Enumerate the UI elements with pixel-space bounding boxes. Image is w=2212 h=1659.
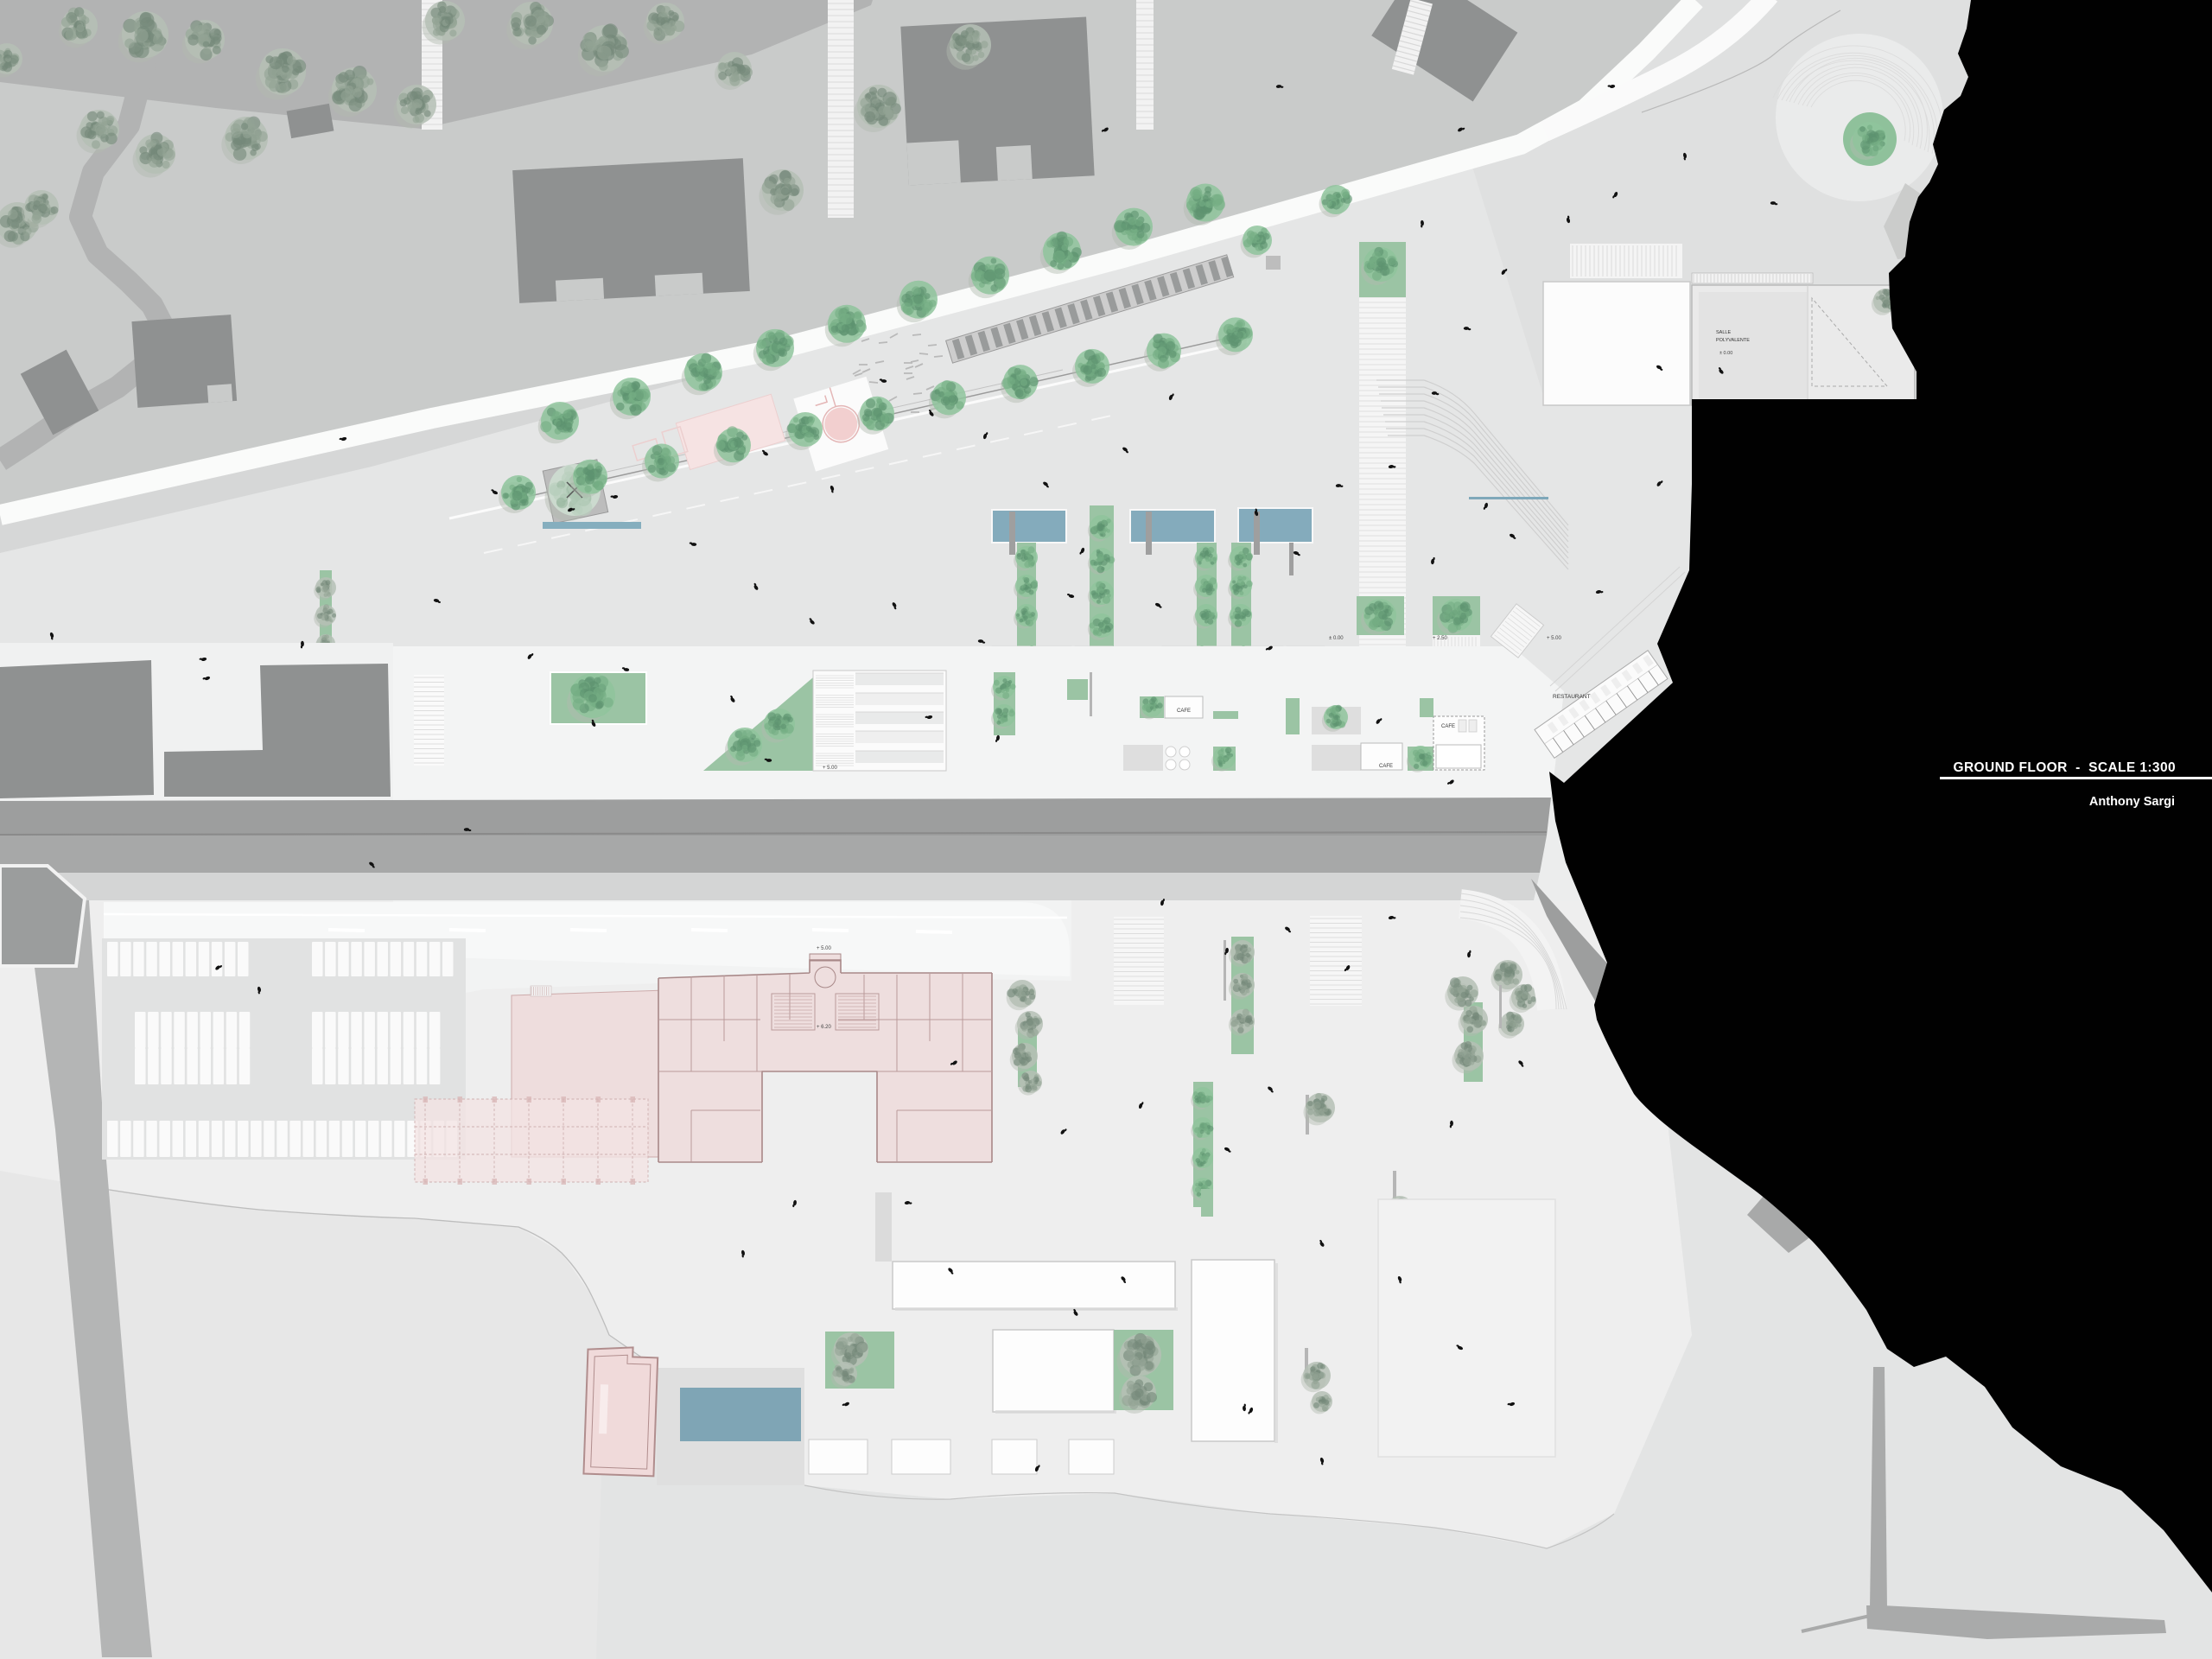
svg-text:+ 6.20: + 6.20 xyxy=(817,1025,832,1030)
svg-text:± 0.00: ± 0.00 xyxy=(1329,636,1344,641)
svg-text:+ 5.00: + 5.00 xyxy=(1547,636,1562,641)
svg-text:+ 5.00: + 5.00 xyxy=(823,766,838,771)
svg-text:+ 5.00: + 5.00 xyxy=(817,946,832,951)
svg-text:Anthony Sargi: Anthony Sargi xyxy=(2089,795,2175,809)
svg-text:SALLE: SALLE xyxy=(1716,330,1731,335)
svg-text:POLYVALENTE: POLYVALENTE xyxy=(1716,338,1750,343)
svg-text:CAFE: CAFE xyxy=(1379,764,1393,769)
svg-text:GROUND FLOOR - SCALE 1:300: GROUND FLOOR - SCALE 1:300 xyxy=(1953,760,2176,775)
svg-text:± 0.00: ± 0.00 xyxy=(1719,351,1732,356)
svg-text:CAFE: CAFE xyxy=(1441,724,1455,729)
svg-text:+ 2.50: + 2.50 xyxy=(1433,636,1448,641)
svg-text:RESTAURANT: RESTAURANT xyxy=(1553,694,1591,700)
svg-text:CAFE: CAFE xyxy=(1177,709,1191,714)
